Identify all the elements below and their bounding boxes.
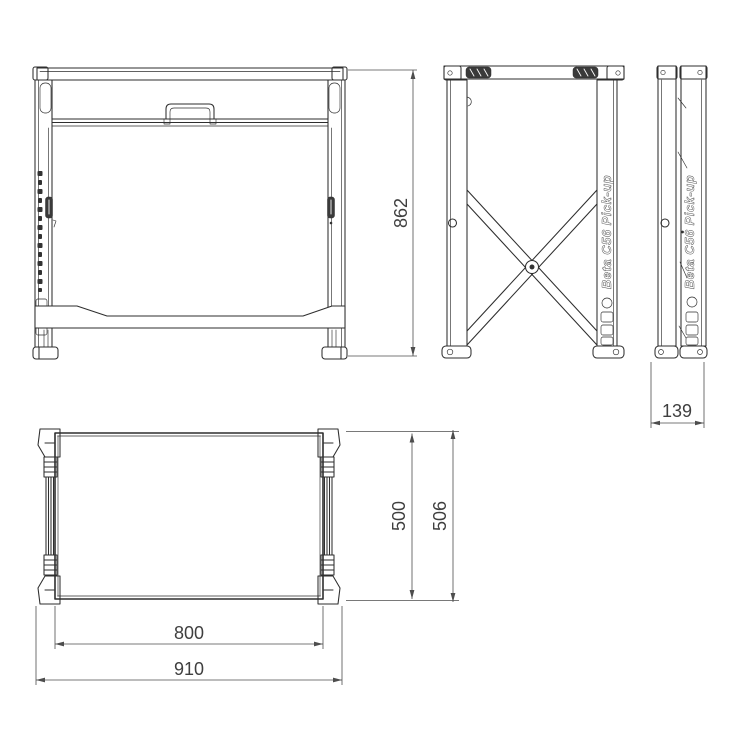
brand-text-side-view: Beta C56 Pick-up (599, 175, 614, 289)
x-brace (467, 190, 597, 345)
dimension-height: 862 (348, 70, 417, 356)
technical-drawing-canvas: Beta C56 Pick-up Beta C56 Pick-up (0, 0, 750, 750)
corner-cap (33, 67, 48, 80)
carry-handle (164, 104, 216, 124)
rear-leg (447, 80, 467, 346)
brand-logo-icon (602, 298, 612, 308)
foot (33, 347, 58, 359)
leg-clamp-blocks (44, 457, 334, 575)
brand-text-folded-view: Beta C56 Pick-up (682, 175, 697, 289)
pivot-hole (661, 219, 669, 227)
foot (680, 346, 707, 358)
worktop-edge (37, 68, 343, 80)
dimension-depth: 500 506 (346, 430, 459, 602)
bottom-shelf (35, 306, 345, 328)
workbench-drawing: Beta C56 Pick-up Beta C56 Pick-up (0, 0, 750, 750)
dim-label-139: 139 (662, 401, 692, 421)
dim-label-500: 500 (389, 501, 409, 531)
apron-panel (52, 80, 328, 119)
plan-view (38, 429, 340, 604)
brand-logo-icon (687, 297, 697, 307)
folded-leg-panel (658, 66, 676, 346)
folded-leg-rails (46, 477, 332, 555)
dimension-width-inner: 800 (55, 606, 323, 649)
dim-label-506: 506 (430, 501, 450, 531)
folded-side-view: Beta C56 Pick-up (655, 66, 707, 358)
dimension-folded-depth: 139 (651, 362, 704, 428)
corner-cap (332, 67, 347, 80)
dim-label-862: 862 (391, 198, 411, 228)
dim-label-910: 910 (174, 659, 204, 679)
dim-label-800: 800 (174, 623, 204, 643)
foot (322, 347, 347, 359)
dimension-width-outer: 910 (36, 606, 342, 685)
pivot-hole (449, 219, 457, 227)
worktop-outline (55, 433, 323, 599)
side-view: Beta C56 Pick-up (442, 66, 624, 358)
foot (442, 346, 471, 358)
front-view (33, 67, 347, 359)
foot (593, 346, 624, 358)
